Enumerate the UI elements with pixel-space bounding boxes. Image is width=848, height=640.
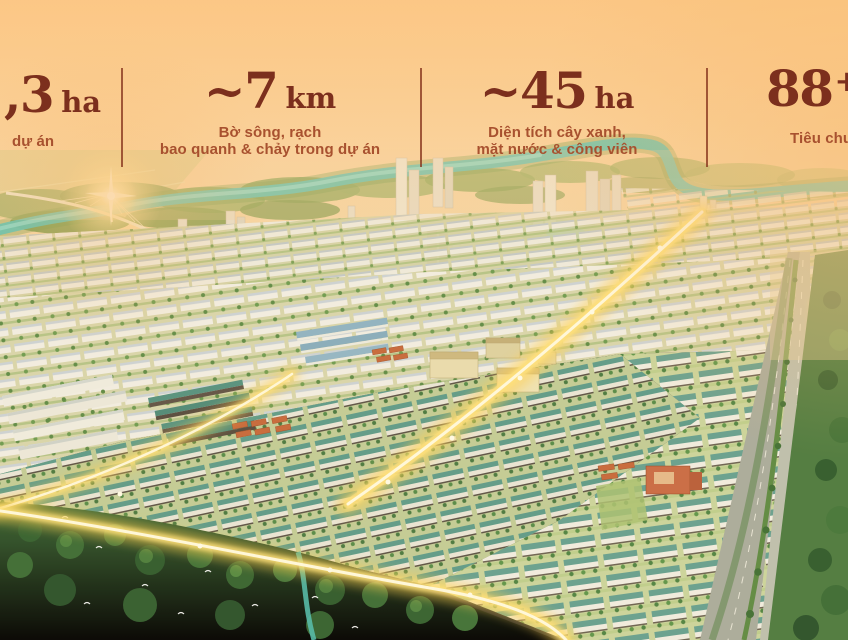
marketing-hero-image: ,3ha dự án ~7km Bờ sông, rạchbao quanh &… bbox=[0, 0, 848, 640]
atmosphere-haze bbox=[0, 0, 848, 640]
masterplan-aerial-render bbox=[0, 0, 848, 640]
